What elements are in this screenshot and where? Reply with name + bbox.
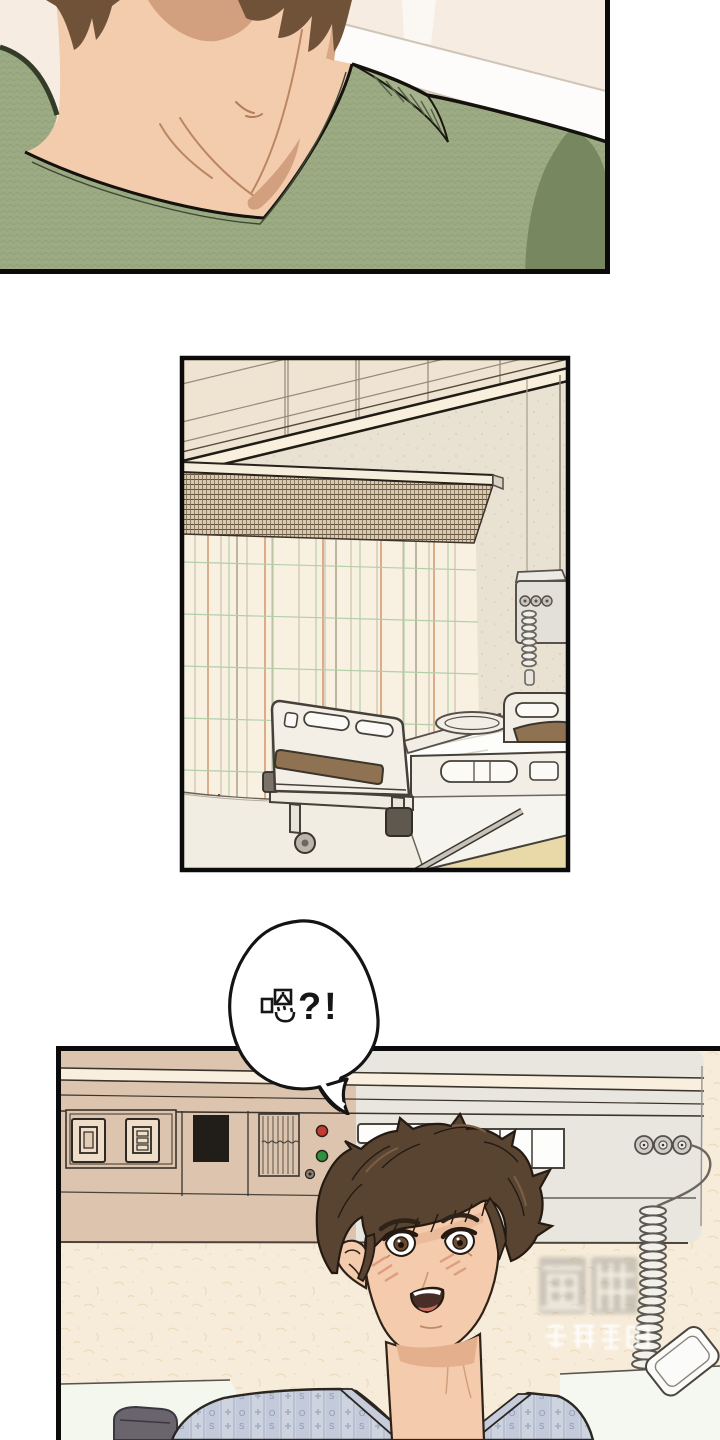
svg-text:?: ?	[298, 986, 321, 1028]
svg-text:!: !	[324, 986, 337, 1028]
